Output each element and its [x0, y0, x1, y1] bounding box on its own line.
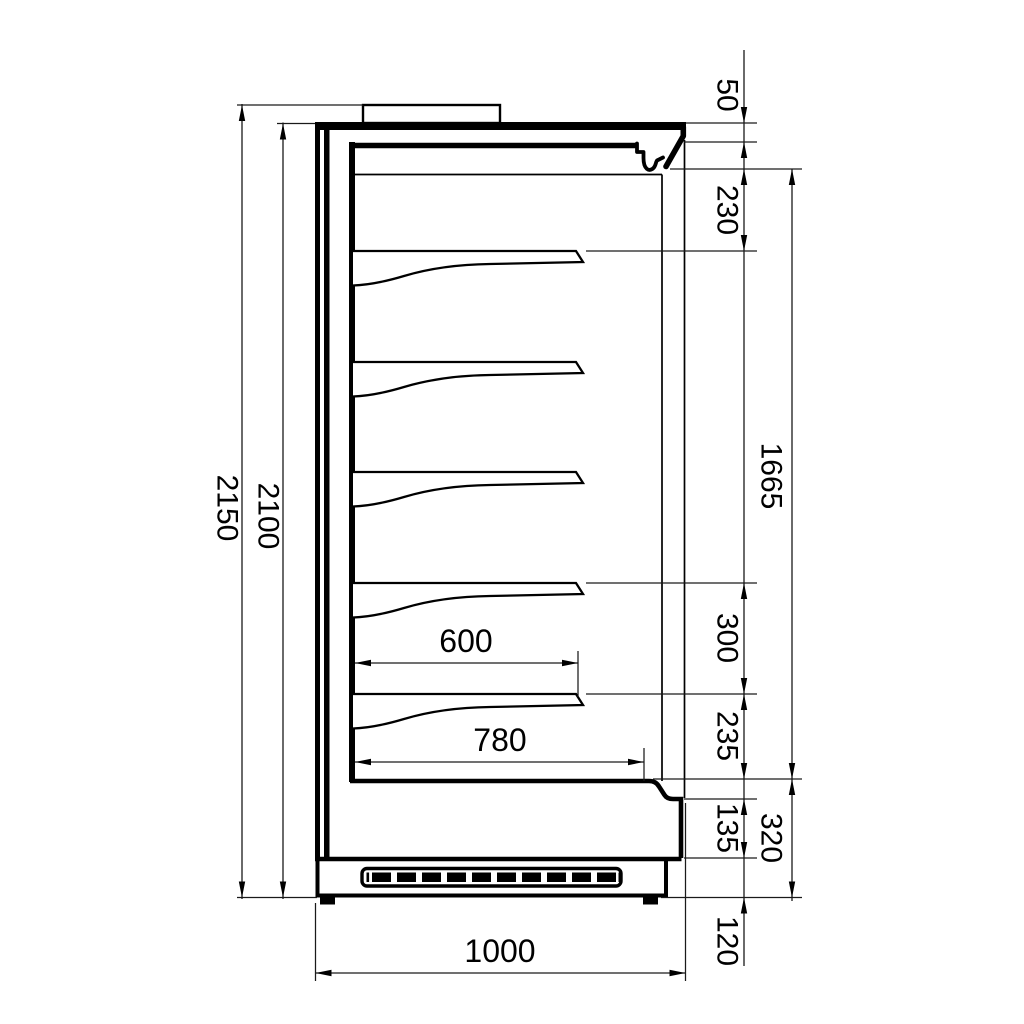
top-box	[363, 105, 500, 123]
dimension-annotations: 2150 2100 50 230 1665 300 235 135 320 12…	[211, 50, 803, 981]
dim-canopy-zone: 230	[711, 185, 744, 235]
interior-back-panel	[349, 142, 355, 782]
dim-overall-depth: 1000	[464, 933, 535, 969]
dim-base-section: 320	[755, 813, 788, 863]
dim-shelf-depth: 600	[439, 623, 492, 659]
dim-display-opening: 1665	[755, 443, 788, 510]
shelf-3	[353, 472, 583, 507]
foot-left	[320, 896, 335, 905]
dim-canopy-lip: 50	[711, 78, 744, 111]
back-wall-inner	[324, 128, 330, 860]
shelf-2	[353, 362, 583, 397]
canopy-slab	[315, 122, 686, 130]
cabinet-structure	[315, 105, 686, 905]
dim-bottom-shelf-spacing: 300	[711, 613, 744, 663]
foot-right	[643, 896, 658, 905]
back-wall-outer	[315, 122, 320, 860]
dimension-labels: 2150 2100 50 230 1665 300 235 135 320 12…	[211, 78, 788, 969]
dim-plinth-height: 120	[711, 916, 744, 966]
shelf-5	[353, 694, 583, 729]
cabinet-section-drawing: 2150 2100 50 230 1665 300 235 135 320 12…	[0, 0, 1024, 1024]
dim-deck-clearance: 235	[711, 711, 744, 761]
dim-deck-depth: 780	[473, 722, 526, 758]
dim-body-height: 2100	[252, 483, 285, 550]
canopy-air-duct-hook	[637, 144, 663, 170]
dim-bumper-height: 135	[711, 803, 744, 853]
canopy-fascia	[666, 127, 683, 167]
dim-overall-height: 2150	[211, 475, 244, 542]
bottom-deck	[350, 781, 681, 858]
shelf-4	[353, 583, 583, 618]
technical-drawing-page: 2150 2100 50 230 1665 300 235 135 320 12…	[0, 0, 1024, 1024]
shelf-1	[353, 251, 583, 286]
air-grille	[362, 869, 621, 887]
